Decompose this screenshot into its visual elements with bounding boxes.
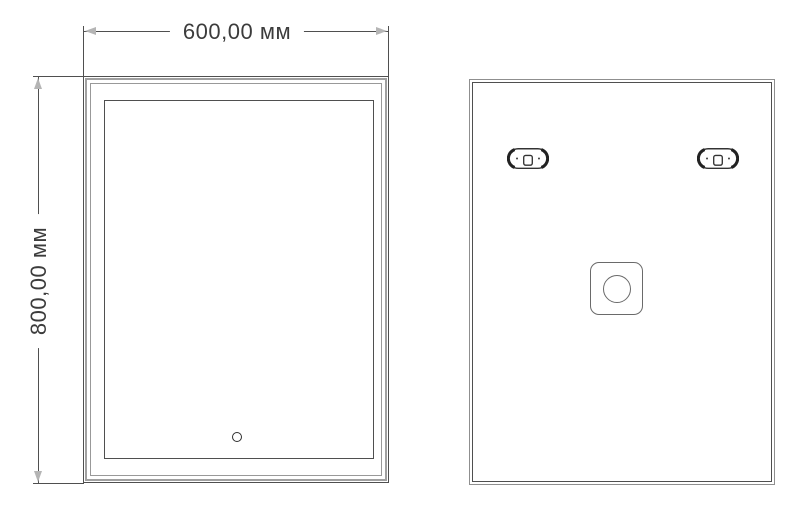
junction-box: [590, 262, 643, 315]
height-extension-line-bottom: [33, 483, 84, 484]
junction-box-circle: [603, 275, 631, 303]
width-extension-line-left: [83, 26, 84, 76]
width-extension-line-right: [388, 26, 389, 76]
mounting-bracket-right-icon: [697, 147, 739, 170]
width-arrow-right-icon: [376, 27, 387, 35]
height-extension-line-top: [33, 76, 83, 77]
front-view: [83, 76, 389, 483]
mounting-bracket-left-icon: [507, 147, 549, 170]
height-arrow-bottom-icon: [34, 471, 42, 482]
touch-sensor-circle: [232, 432, 242, 442]
width-dimension-label: 600,00 мм: [170, 21, 304, 43]
height-dimension-label: 800,00 мм: [28, 214, 50, 348]
drawing-canvas: 600,00 мм 800,00 мм: [0, 0, 798, 513]
width-arrow-left-icon: [85, 27, 96, 35]
height-arrow-top-icon: [34, 78, 42, 89]
front-inner-mirror: [104, 100, 374, 459]
